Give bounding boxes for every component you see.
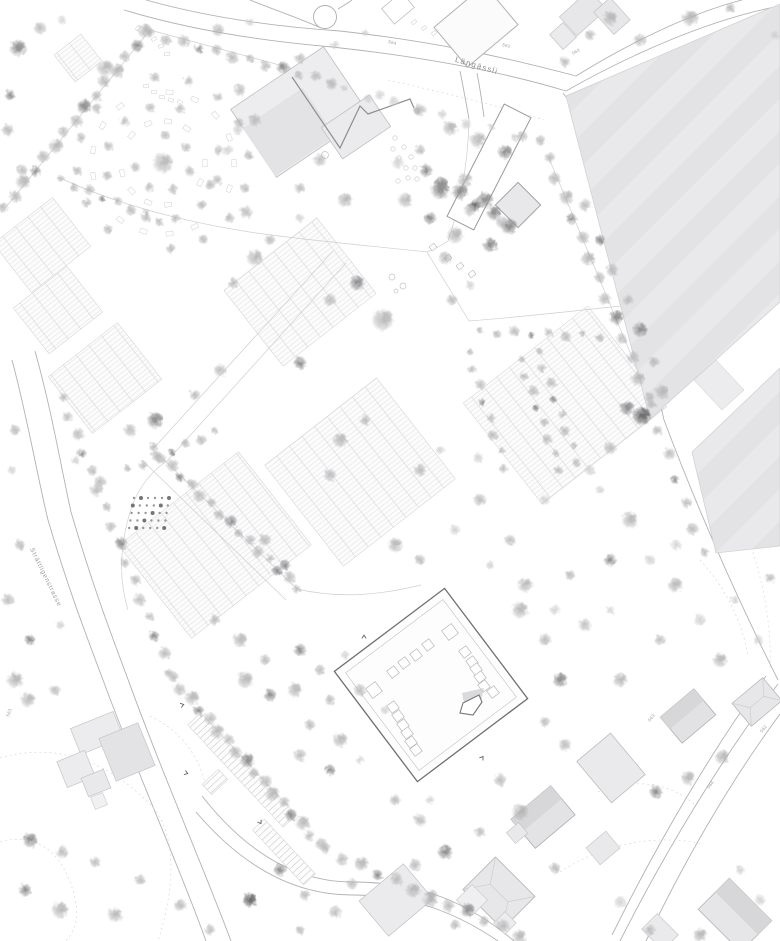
tree [165,243,176,254]
tree-canopy [662,447,676,461]
tree [387,95,399,107]
sapling-dot [146,504,148,506]
tree [224,514,238,528]
site-plan: Längässli Strättligenstrasse 564 562 560… [0,0,780,941]
tree-canopy [177,34,191,48]
tree [130,162,141,173]
tree-canopy [463,173,472,182]
tree [576,230,590,244]
tree-canopy [338,433,347,442]
tree [189,389,201,401]
parking-layer [188,713,316,885]
garden-bed [144,199,152,206]
tree [55,620,65,630]
tree [531,404,539,412]
tree [324,764,336,776]
tree [20,692,36,708]
tree-canopy [495,215,509,229]
tree-canopy [453,227,463,237]
elevation-label: 562 [502,42,512,49]
roundabout [314,6,337,29]
tree-core [171,451,173,453]
tree [580,251,596,267]
tree-canopy [553,466,563,476]
tree [130,39,144,53]
tree [441,899,455,913]
tree-canopy [613,895,627,909]
tree [595,485,605,495]
elevation-label: 564 [388,39,398,46]
garden-bed [166,90,173,95]
tree [413,813,427,827]
tree [170,213,181,224]
tree-canopy [145,102,156,113]
tree [49,684,61,696]
tree-core [457,189,462,194]
tree [232,632,248,648]
tree [337,192,353,208]
tree [105,521,117,533]
tree [594,271,606,283]
building-footprint [586,831,620,865]
tree-canopy [519,371,529,381]
garden-bed [191,223,199,230]
tree [233,528,243,538]
tree [408,858,422,872]
seating-circle [396,179,400,183]
tree [692,927,708,941]
tree [497,447,505,455]
tree-canopy [186,478,198,490]
tree-canopy [0,201,9,213]
tree-core [625,406,630,411]
tree-canopy [75,132,86,143]
roundabout-circle [314,6,337,29]
tree [564,569,576,581]
tree-canopy [143,182,154,193]
tree-core [639,413,645,419]
garden-bed [164,119,171,124]
tree [125,204,137,216]
tree-canopy [115,64,124,73]
tree-canopy [248,767,260,779]
tree [14,539,26,551]
tree-canopy [130,574,142,586]
tree [143,182,154,193]
sapling-dot [167,504,169,506]
garden-bed [128,187,136,195]
tree-canopy [644,924,656,936]
tree-canopy [473,493,487,507]
tree [578,618,592,632]
tree-canopy [559,425,571,437]
tree-canopy [294,182,306,194]
tree-canopy [559,56,571,68]
survey-marker [180,702,184,707]
tree [430,180,450,200]
tree [754,894,766,906]
tree [584,29,596,41]
garden-bed [119,169,125,177]
tree [264,786,280,802]
tree [615,333,627,345]
tree [497,144,513,160]
garden-plot [0,197,91,292]
tree [685,522,699,536]
tree [236,671,254,689]
tree-canopy [644,554,656,566]
sapling-dot [133,497,135,499]
tree-core [298,361,302,365]
tree-canopy [323,293,337,307]
tree [207,498,217,508]
tree [72,165,83,176]
tree-canopy [1,593,15,607]
tree [603,441,617,455]
tree-canopy [618,673,627,682]
garden-bed [232,160,236,167]
tree-canopy [70,455,80,465]
tree-canopy [476,132,486,142]
tree-canopy [213,509,225,521]
tree-core [424,168,428,172]
tree [91,90,103,102]
tree [419,163,433,177]
tree-canopy [448,121,457,130]
tree-canopy [380,705,390,715]
tree-canopy [57,174,65,182]
tree [558,409,568,419]
tree [558,738,572,752]
tree-canopy [7,465,17,475]
tree [608,309,624,325]
tree-canopy [233,528,243,538]
tree-canopy [55,620,65,630]
tree [310,70,322,82]
elevation-label: 560 [571,47,581,56]
garden-bed [166,231,173,236]
tree-canopy [16,164,28,176]
tree-canopy [21,175,30,184]
tree-canopy [330,40,340,50]
tree [166,458,180,472]
tree [330,40,340,50]
tree-canopy [472,452,484,464]
tree [613,895,627,909]
sapling-dot [153,504,155,506]
tree-canopy [57,15,67,25]
garden-bed [203,160,207,167]
tree-canopy [466,347,474,355]
tree-core [558,678,563,683]
tree [595,333,605,343]
tree [145,102,156,113]
tree [279,559,291,571]
tree [259,60,271,72]
tree [224,212,235,223]
tree [118,50,130,62]
tree [83,184,95,196]
planter-box [143,84,148,88]
contour-line [700,560,748,656]
tree [752,634,764,646]
tree [9,39,27,57]
tree-canopy [239,205,253,219]
sapling-dot [150,519,152,521]
tree-canopy [238,633,247,642]
tree [363,93,373,103]
tree [152,152,174,174]
tree-canopy [211,23,225,37]
tree [264,234,276,246]
tree [192,489,206,503]
garden-bed [140,228,148,234]
tree-core [488,243,493,248]
building-footprint [577,733,645,803]
tree-canopy [393,538,402,547]
tree-canopy [160,130,171,141]
tree [33,21,47,35]
sapling-dot [157,519,159,521]
tree [478,398,486,406]
tree [700,547,710,557]
tree-canopy [154,217,164,227]
tree-canopy [165,243,176,254]
tree-canopy [166,458,180,472]
tree [449,919,461,931]
tree [332,432,348,448]
tree-core [481,401,483,403]
building-footprint [382,0,415,24]
garden-bed [116,216,124,224]
tree-canopy [180,438,190,448]
tree [446,226,464,244]
tree-canopy [508,325,520,337]
tree [293,356,307,370]
tree-canopy [598,292,612,306]
tree [15,174,31,190]
tree-canopy [539,494,551,506]
planter-box [152,91,157,94]
garden-bed [226,133,233,141]
tree-canopy [548,172,562,186]
tree [113,196,123,206]
tree-canopy [102,170,113,181]
tree [223,733,235,745]
tree-core [608,558,612,562]
contour-line [748,538,770,668]
tree-canopy [764,572,776,584]
tree [24,634,36,646]
tree-canopy [293,683,302,692]
tree-canopy [353,683,367,697]
tree-core [248,898,253,903]
tree-canopy [626,350,640,364]
seating-circle [409,155,413,159]
tree-canopy [387,95,399,107]
tree [76,98,92,114]
tree [107,907,123,923]
tree-canopy [105,521,117,533]
tree-canopy [463,203,477,217]
tree-canopy [133,593,147,607]
tree-canopy [724,2,736,14]
tree-core [654,790,658,794]
tree-canopy [752,634,764,646]
tree [667,577,683,593]
tree-canopy [660,385,669,394]
tree [437,844,453,860]
tree [549,604,561,616]
tree [340,650,350,660]
tree [559,56,571,68]
tree [764,572,776,584]
tree-canopy [544,327,554,337]
tree-core [152,634,156,638]
garden-bed [90,172,96,180]
tree [303,830,315,842]
tree-core [101,198,103,200]
tree-canopy [1,123,15,137]
tree-canopy [516,130,528,142]
tree [181,142,192,153]
tree [493,773,507,787]
tree [644,554,656,566]
parking-strip [202,769,228,794]
tree [114,536,128,550]
tree-canopy [212,91,223,102]
tree [469,131,487,149]
tree-canopy [408,858,422,872]
tree-canopy [14,539,26,551]
tree-core [34,170,38,174]
tree [9,424,21,436]
tree-canopy [670,539,682,551]
tree [548,172,562,186]
tree [632,406,652,426]
tree-canopy [253,250,263,260]
tree [626,350,640,364]
tree-canopy [681,497,693,509]
tree [335,852,349,866]
tree [549,396,557,404]
tree-canopy [538,633,552,647]
garden-bed [144,120,152,127]
tree [203,712,217,726]
tree-core [178,476,181,479]
tree [735,865,745,875]
sapling-dot [161,497,163,499]
tree-canopy [647,399,657,409]
tree [239,205,253,219]
tree-canopy [603,441,617,455]
tree-canopy [576,230,590,244]
sapling-dot [130,512,132,514]
tree-canopy [55,845,69,859]
tree [487,123,495,131]
tree [150,72,161,83]
tree [442,120,458,136]
elevation-label: 563 [647,713,656,723]
sapling-dot [167,496,171,500]
tree-canopy [59,392,69,402]
tree [594,234,606,246]
tree-canopy [189,389,201,401]
tree-canopy [224,212,235,223]
tree [320,842,332,854]
tree-canopy [91,90,103,102]
tree-canopy [403,193,412,202]
tree-canopy [145,612,155,622]
tree-canopy [390,872,404,886]
tree-canopy [486,413,496,423]
survey-marker [479,755,484,760]
sapling-dot [154,497,156,499]
tree [324,694,336,706]
tree-canopy [735,865,745,875]
tree [770,30,780,40]
tree [511,803,529,821]
tree [536,347,544,355]
tree-canopy [310,70,322,82]
tree [644,924,656,936]
tree-core [197,709,201,713]
tree [1,123,15,137]
tree-canopy [119,116,130,127]
tree-canopy [49,684,61,696]
tree-canopy [103,60,113,70]
tree [465,280,475,290]
tree-core [530,334,532,336]
tree-canopy [58,902,68,912]
tree [4,89,16,101]
tree [212,91,223,102]
tree-canopy [605,263,619,277]
tree-canopy [465,280,475,290]
tree [299,889,311,901]
tree-canopy [571,458,581,468]
tree [157,646,171,660]
road-edge [250,0,321,28]
tree-core [465,908,470,913]
tree [460,118,472,130]
tree [160,34,172,46]
seating-circle [406,176,410,180]
tree-canopy [86,464,98,476]
tree-canopy [411,883,420,892]
tree [198,234,209,245]
tree-canopy [303,830,315,842]
tree-canopy [89,856,101,868]
building [732,678,780,727]
tree-canopy [340,650,350,660]
tree-core [673,478,676,481]
tree-canopy [413,813,427,827]
tree [460,902,476,918]
tree-canopy [134,874,146,886]
tree [712,652,728,668]
tree-canopy [497,447,505,455]
tree-canopy [55,139,64,148]
tree-canopy [595,485,605,495]
road-edge [338,0,352,9]
tree-canopy [71,427,85,441]
tree [359,414,371,426]
building [382,0,415,24]
tree-canopy [770,30,780,40]
tree [387,537,403,553]
tree-canopy [248,113,262,127]
